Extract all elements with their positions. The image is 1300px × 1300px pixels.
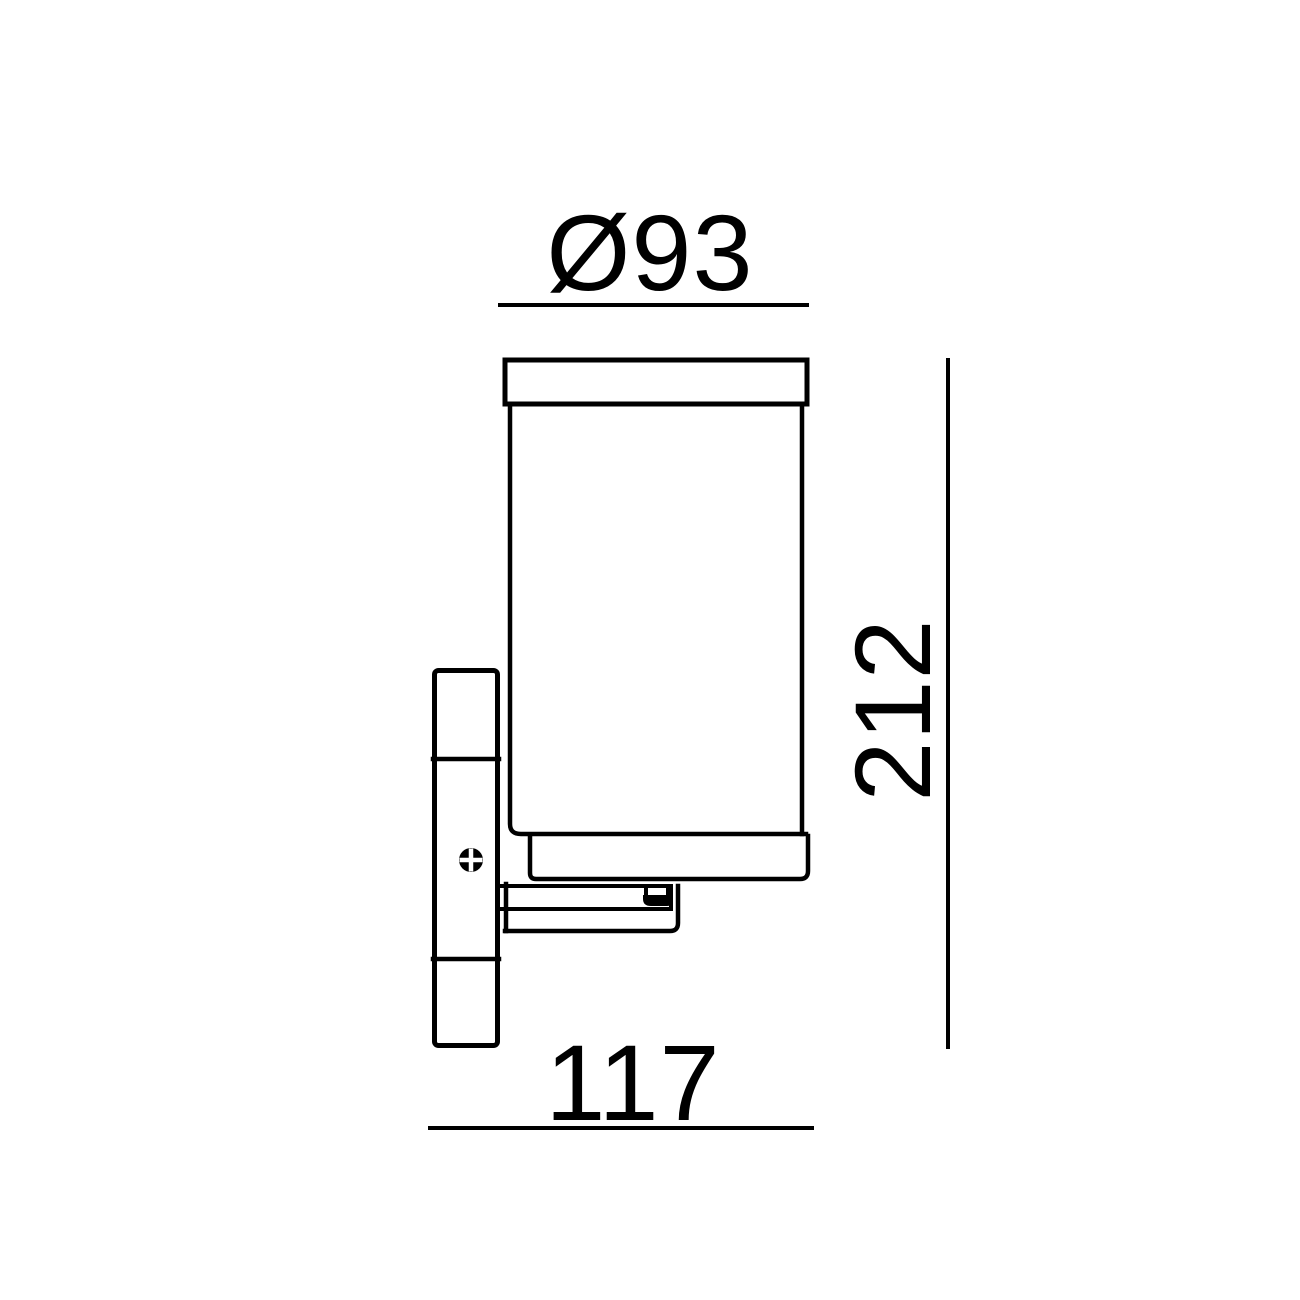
dimension-depth: 117 [430,1022,812,1143]
dimension-height: 212 [832,360,953,1047]
dimension-label-height: 212 [832,618,953,801]
dimension-label-depth: 117 [545,1022,720,1143]
dimension-label-diameter: Ø93 [546,192,753,313]
arm-latch-fill [643,895,673,906]
screw-head-icon [459,848,483,872]
dimension-diameter: Ø93 [500,192,807,313]
bottom-cap [530,836,808,879]
fixture-outline [433,360,808,1046]
top-cap [505,360,807,404]
glass-left-edge [510,405,806,834]
drawing-canvas: Ø93 212 117 [0,0,1300,1300]
technical-drawing: Ø93 212 117 [0,0,1300,1300]
mounting-arm [502,884,678,931]
